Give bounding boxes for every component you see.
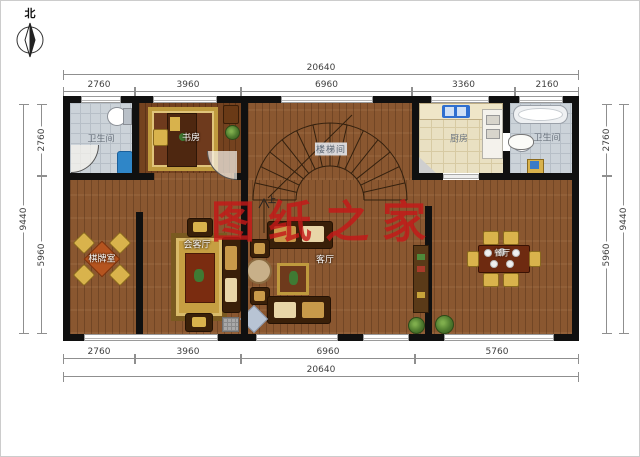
corner-chair <box>223 105 239 124</box>
bathtub-inner <box>518 108 563 121</box>
floor-plan-canvas: 北 上 <box>0 0 640 457</box>
window-bathR <box>519 96 563 103</box>
dim-top-total: 20640 <box>63 74 579 75</box>
coffee-table-round <box>246 258 272 284</box>
window-bottom-dining <box>444 334 554 341</box>
wall-chess-reception <box>136 212 143 334</box>
dim-left-total: 9440 <box>23 104 24 334</box>
compass-north-icon <box>13 21 47 59</box>
washbasin-icon <box>117 151 133 175</box>
wall-kitchen-bathR-upper <box>503 103 510 133</box>
dim-left-seg-2: 5960 <box>41 176 42 334</box>
dim-bottom-seg-3: 6960 <box>241 358 415 359</box>
compass-north-label: 北 <box>13 5 47 21</box>
dining-chair-bottom-right <box>503 273 519 287</box>
dim-bottom-seg-4: 5760 <box>415 358 579 359</box>
speaker-box <box>222 317 239 332</box>
dim-left-seg-1: 2760 <box>41 104 42 176</box>
room-label-reception: 会客厅 <box>183 238 210 251</box>
stove-burner-top <box>486 115 500 125</box>
dim-bottom-total: 20640 <box>63 376 579 377</box>
wall-outer-right <box>572 96 579 341</box>
living-cabinet <box>413 245 429 313</box>
window-bottom-living-a <box>256 334 338 341</box>
room-label-bathroom-left: 卫生间 <box>87 132 114 145</box>
study-chair <box>153 129 168 146</box>
dim-top-seg-3: 6960 <box>241 91 412 92</box>
stair-treads <box>253 115 407 200</box>
living-plant-icon <box>408 317 425 334</box>
window-bottom-left <box>84 334 218 341</box>
wall-top-row-right-a <box>412 173 443 180</box>
study-plant-icon <box>225 125 240 140</box>
sink-basin-left <box>445 107 454 116</box>
reception-table-plant-icon <box>194 269 204 282</box>
dim-top-seg-5: 2160 <box>515 91 579 92</box>
wall-kitchen-bathR-lower <box>503 151 510 173</box>
dining-plant-icon <box>435 315 454 334</box>
reception-sofa-right <box>222 237 241 313</box>
toilet-tank <box>123 108 132 125</box>
dim-bottom-seg-2: 3960 <box>135 358 241 359</box>
room-label-dining-room: 餐厅 <box>494 248 510 259</box>
dim-bottom-seg-1: 2760 <box>63 358 135 359</box>
reception-chair-top <box>187 218 213 237</box>
sink-basin-right <box>457 107 466 116</box>
wall-study-stair <box>241 103 248 180</box>
room-label-bathroom-right: 卫生间 <box>533 131 560 144</box>
window-bathL <box>81 96 121 103</box>
wall-top-row-left-a <box>70 173 154 180</box>
dim-right-total: 9440 <box>623 104 624 334</box>
dining-chair-bottom-left <box>483 273 499 287</box>
window-kitchen <box>431 96 489 103</box>
dining-chair-left <box>467 251 479 267</box>
dim-right-seg-2: 5960 <box>606 176 607 334</box>
wall-bathL-study <box>132 103 139 173</box>
room-label-living-room: 客厅 <box>316 253 334 266</box>
dining-chair-top-left <box>483 231 499 245</box>
watermark-text: 图纸之家 <box>211 201 439 245</box>
window-bottom-living-b <box>363 334 409 341</box>
living-rug-plant-icon <box>289 271 298 285</box>
washbasin-right-bowl <box>530 161 539 169</box>
compass: 北 <box>13 5 47 57</box>
dining-chair-top-right <box>503 231 519 245</box>
stove-burner-bottom <box>486 129 500 139</box>
dim-top-seg-2: 3960 <box>135 91 241 92</box>
window-stair <box>281 96 373 103</box>
reception-chair-bottom <box>185 313 213 332</box>
living-sofa-bottom <box>267 296 331 324</box>
dining-chair-right <box>529 251 541 267</box>
wall-outer-left <box>63 96 70 341</box>
bathroom-right-door-leaf <box>508 134 534 150</box>
wall-top-row-right-b <box>479 173 579 180</box>
dim-right-seg-1: 2760 <box>606 104 607 176</box>
dim-top-seg-1: 2760 <box>63 91 135 92</box>
room-label-stairwell: 楼梯间 <box>315 143 347 156</box>
room-label-kitchen: 厨房 <box>450 132 468 145</box>
dim-top-seg-4: 3360 <box>412 91 515 92</box>
room-label-chess-room: 棋牌室 <box>88 252 115 265</box>
desk-pad <box>170 117 180 131</box>
wall-stair-kitchen <box>412 103 419 180</box>
window-study <box>153 96 217 103</box>
kitchen-door <box>443 174 479 179</box>
room-label-study: 书房 <box>182 131 200 144</box>
